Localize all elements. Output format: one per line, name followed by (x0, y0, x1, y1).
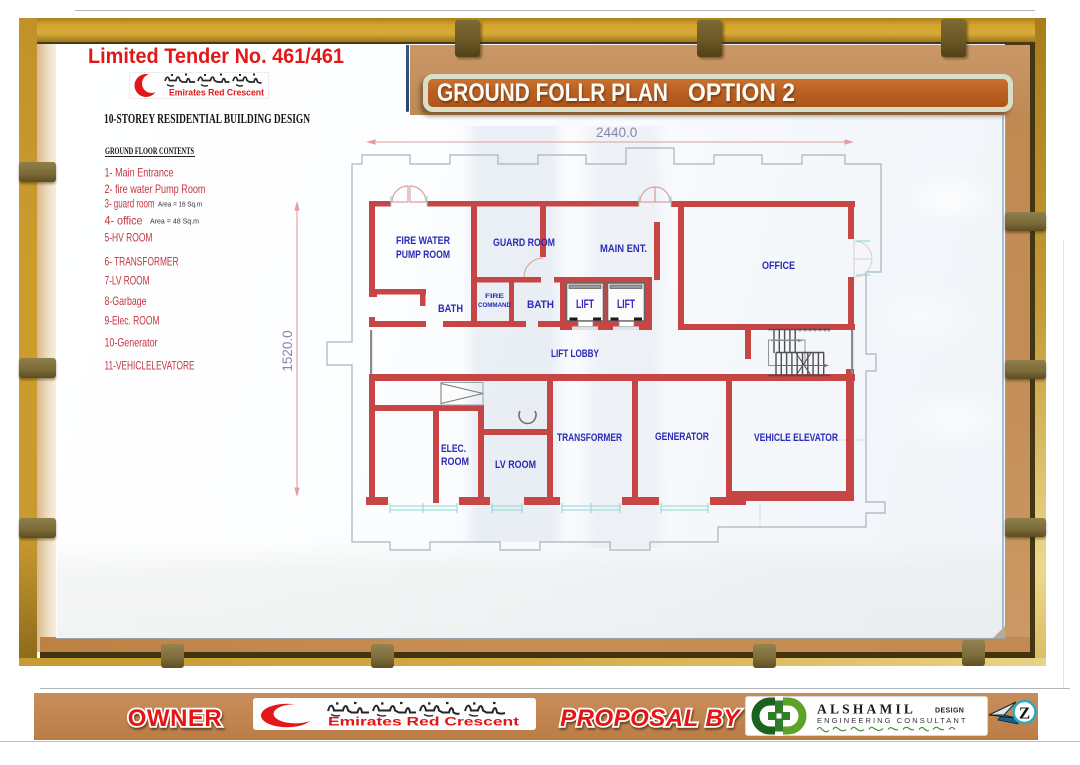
svg-text:PUMP ROOM: PUMP ROOM (396, 249, 450, 261)
svg-text:OFFICE: OFFICE (762, 260, 795, 272)
svg-text:ELEC.: ELEC. (441, 443, 466, 455)
svg-text:FIRE WATER: FIRE WATER (396, 235, 450, 247)
svg-text:TRANSFORMER: TRANSFORMER (557, 432, 622, 444)
svg-text:MAIN ENT.: MAIN ENT. (600, 243, 647, 255)
svg-text:ENGINEERING CONSULTANT: ENGINEERING CONSULTANT (817, 716, 968, 725)
svg-text:ALSHAMIL: ALSHAMIL (817, 702, 916, 717)
svg-text:LIFT: LIFT (576, 297, 594, 311)
svg-text:GENERATOR: GENERATOR (655, 431, 709, 443)
svg-text:OWNER: OWNER (128, 705, 223, 732)
svg-text:LV ROOM: LV ROOM (495, 459, 536, 471)
svg-text:Emirates Red Crescent: Emirates Red Crescent (328, 715, 519, 729)
svg-text:PROPOSAL BY: PROPOSAL BY (560, 705, 741, 732)
svg-text:LIFT LOBBY: LIFT LOBBY (551, 348, 599, 360)
svg-text:2440.0: 2440.0 (596, 125, 637, 140)
svg-text:1520.0: 1520.0 (280, 330, 295, 371)
svg-text:ROOM: ROOM (441, 456, 469, 468)
svg-text:VEHICLE ELEVATOR: VEHICLE ELEVATOR (754, 432, 838, 444)
svg-text:GUARD ROOM: GUARD ROOM (493, 237, 555, 249)
svg-text:COMMAND: COMMAND (478, 303, 512, 309)
svg-text:BATH: BATH (438, 303, 463, 315)
svg-text:BATH: BATH (527, 299, 554, 311)
svg-text:DESIGN: DESIGN (935, 708, 964, 715)
svg-text:LIFT: LIFT (617, 297, 635, 311)
svg-text:Z: Z (1019, 704, 1030, 723)
svg-text:FIRE: FIRE (485, 294, 504, 300)
